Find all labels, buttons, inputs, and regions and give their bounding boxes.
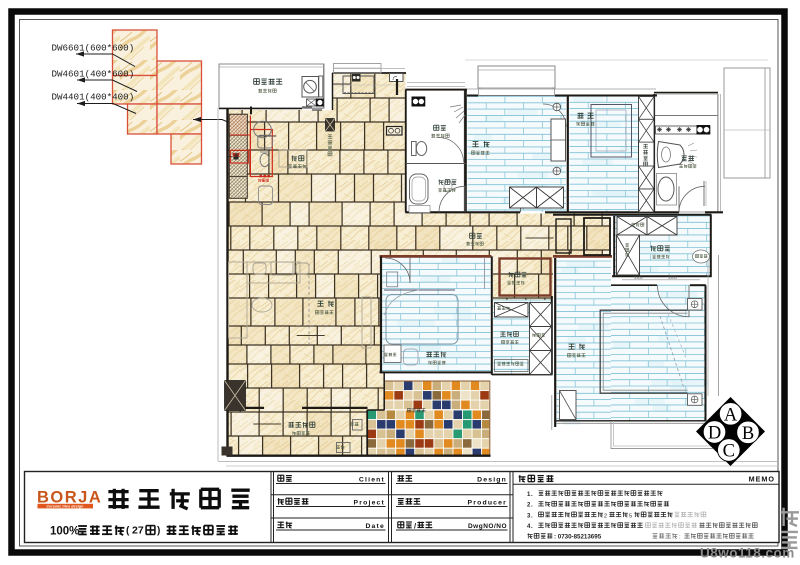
svg-text:27: 27 — [132, 525, 144, 537]
svg-text:B: B — [742, 424, 754, 444]
svg-text:3300: 3300 — [634, 275, 644, 280]
svg-text:A: A — [724, 405, 738, 425]
svg-text:: 0730-85213695: : 0730-85213695 — [554, 534, 602, 541]
svg-text:100%: 100% — [50, 526, 79, 538]
svg-text:DW4401(400*400): DW4401(400*400) — [52, 92, 135, 103]
svg-text:Client: Client — [359, 477, 385, 484]
svg-text:Ceramic tiles design: Ceramic tiles design — [47, 504, 84, 508]
svg-text:Design: Design — [477, 477, 507, 484]
svg-text:Date: Date — [365, 523, 385, 530]
svg-text:3300: 3300 — [668, 275, 678, 280]
svg-text:MEMO: MEMO — [749, 475, 775, 484]
svg-text:U8wo118.com: U8wo118.com — [700, 546, 795, 561]
svg-text:5: 5 — [629, 513, 632, 519]
svg-text:DW6601(600*600): DW6601(600*600) — [52, 43, 135, 54]
svg-text:C: C — [723, 442, 735, 462]
svg-text:DwgNO/NO: DwgNO/NO — [468, 523, 507, 530]
svg-text:DW4601(400*600): DW4601(400*600) — [52, 69, 135, 80]
svg-text:Producer: Producer — [468, 500, 507, 507]
svg-text:2: 2 — [604, 513, 607, 519]
svg-text:Project: Project — [354, 500, 385, 507]
svg-text:D: D — [708, 424, 721, 444]
svg-text:): ) — [157, 526, 160, 537]
